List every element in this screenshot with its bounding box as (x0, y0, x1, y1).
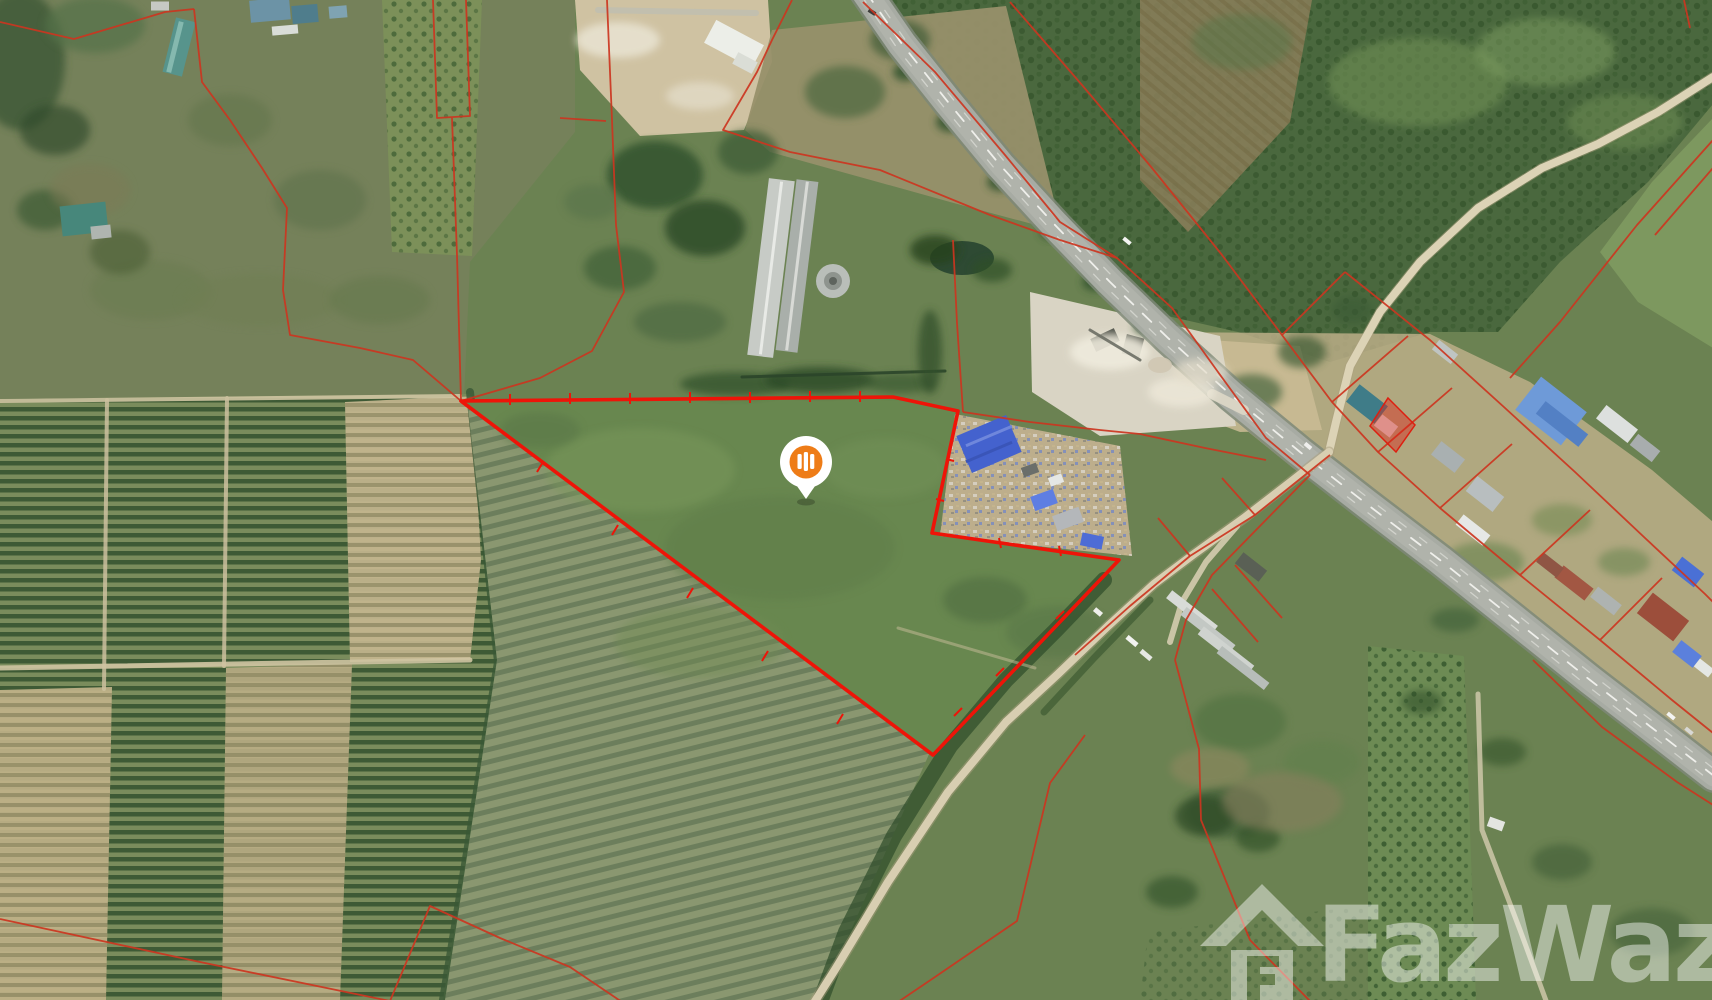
terrain-layer (0, 0, 1712, 1000)
satellite-map-viewport[interactable]: FazWaz (0, 0, 1712, 1000)
satellite-map[interactable] (0, 0, 1712, 1000)
